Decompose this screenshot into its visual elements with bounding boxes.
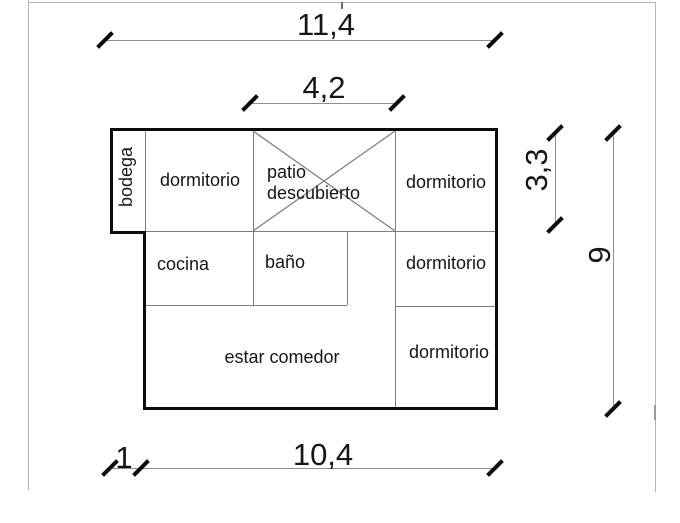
room-label-bodega: bodega bbox=[117, 147, 137, 207]
sheet-frame-right-mark bbox=[654, 405, 656, 420]
wall-bottom bbox=[143, 407, 498, 410]
bodega-wall-left bbox=[110, 128, 113, 234]
room-label-dormitorio-bottom-right: dormitorio bbox=[409, 343, 489, 363]
wall-left bbox=[143, 231, 146, 410]
dimension-line-upper-right-height bbox=[555, 133, 556, 225]
dimension-line-overall-height bbox=[613, 133, 614, 409]
room-label-dormitorio-top-left: dormitorio bbox=[160, 171, 240, 191]
dimension-label-upper-right-height: 3,3 bbox=[520, 148, 554, 191]
dimension-label-main-width: 10,4 bbox=[293, 438, 353, 472]
room-label-cocina: cocina bbox=[157, 255, 209, 275]
room-label-dormitorio-middle-right: dormitorio bbox=[406, 254, 486, 274]
dimension-label-overall-height: 9 bbox=[583, 246, 617, 263]
partition-cocina-bano-bottom bbox=[146, 305, 347, 306]
bodega-wall-bottom bbox=[110, 231, 146, 234]
dimension-label-patio-width: 4,2 bbox=[302, 71, 345, 105]
patio-label-line2: descubierto bbox=[267, 183, 360, 204]
dimension-label-bodega-offset: 1 bbox=[115, 441, 132, 475]
patio-label-line1: patio bbox=[267, 162, 360, 183]
room-label-patio-descubierto: patio descubierto bbox=[267, 162, 360, 204]
partition-bodega-right bbox=[145, 131, 146, 231]
partition-right-column bbox=[395, 131, 396, 407]
partition-dormitorio-right-divider bbox=[395, 306, 495, 307]
sheet-frame-left-line bbox=[28, 0, 29, 490]
dimension-label-overall-width: 11,4 bbox=[297, 8, 355, 42]
room-label-estar-comedor: estar comedor bbox=[224, 348, 339, 368]
wall-right bbox=[495, 128, 498, 410]
partition-bano-right bbox=[347, 231, 348, 305]
room-label-bano: baño bbox=[265, 253, 305, 273]
room-label-dormitorio-top-right: dormitorio bbox=[406, 173, 486, 193]
partition-upper-row-bottom bbox=[146, 231, 495, 232]
floor-plan-canvas: bodega dormitorio patio descubierto dorm… bbox=[0, 0, 680, 523]
